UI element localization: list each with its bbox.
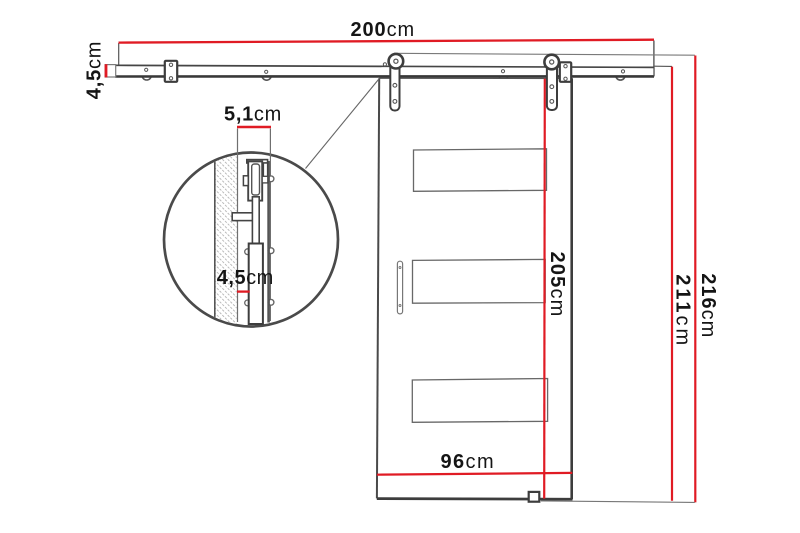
svg-text:5,1cm: 5,1cm bbox=[224, 104, 282, 126]
svg-text:211cm: 211cm bbox=[672, 274, 694, 348]
svg-text:4,5cm: 4,5cm bbox=[83, 41, 105, 99]
svg-text:216cm: 216cm bbox=[697, 273, 719, 338]
svg-text:96cm: 96cm bbox=[441, 451, 496, 473]
svg-text:200cm: 200cm bbox=[351, 19, 416, 41]
svg-text:205cm: 205cm bbox=[546, 252, 568, 318]
svg-text:4,5cm: 4,5cm bbox=[217, 267, 274, 289]
